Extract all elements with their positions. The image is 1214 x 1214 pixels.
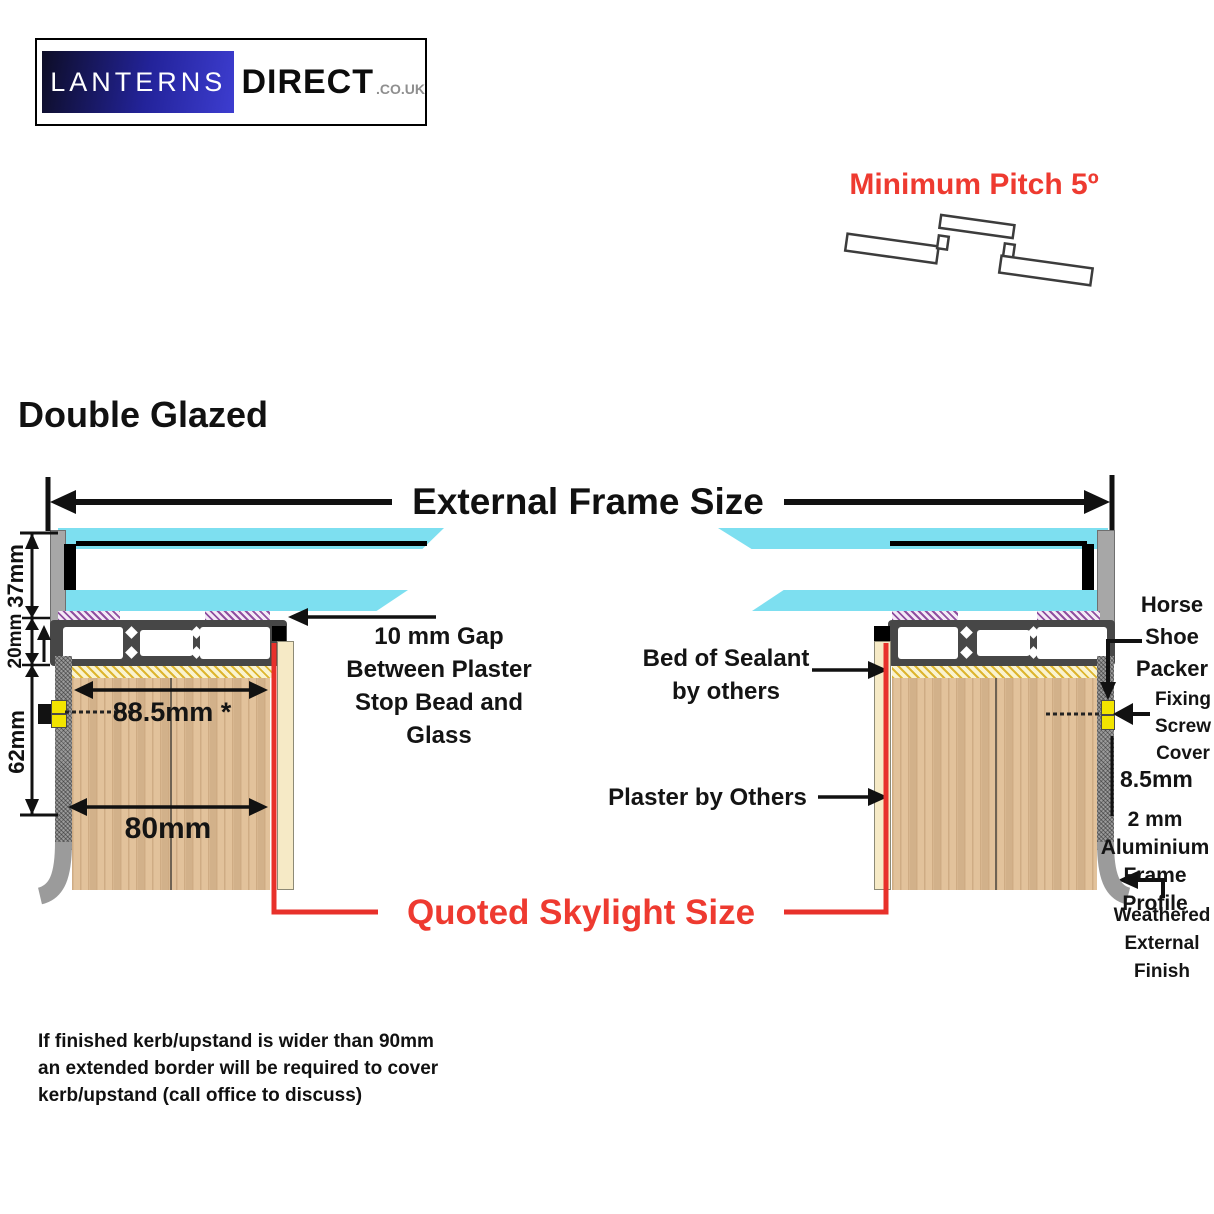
gap-note-line: Stop Bead and [343,686,535,719]
skylight-spec-sheet: LANTERNS DIRECT .CO.UK Minimum Pitch 5º … [0,0,1214,1214]
footer-note-line: If finished kerb/upstand is wider than 9… [38,1028,458,1055]
minimum-pitch-label: Minimum Pitch 5º [832,168,1116,202]
footer-note-line: an extended border will be required to c… [38,1055,458,1082]
sealant-note-line: Bed of Sealant [630,642,822,675]
fixing-screw-note: Fixing Screw Cover [1152,686,1214,767]
weathered-note: Weathered External Finish [1108,902,1214,986]
horse-shoe-note-line: Shoe [1128,621,1214,653]
weathered-note-line: Weathered [1108,902,1214,930]
fixing-screw-note-line: Fixing [1152,686,1214,713]
sealant-bed-right [892,664,1097,678]
quoted-skylight-size-label: Quoted Skylight Size [380,893,782,933]
plaster-stop-bead-left [272,626,286,641]
gap-note-line: Glass [343,719,535,752]
dim-cover: 8.5mm [1120,766,1210,793]
glass-pane-bottom-right [752,590,1108,611]
dim-inner-width: 80mm [68,812,268,846]
external-frame-size-label: External Frame Size [392,481,784,523]
weathered-note-line: External [1108,930,1214,958]
alu-profile-note-line: 2 mm [1094,806,1214,834]
brand-logo: LANTERNS DIRECT .CO.UK [35,38,427,126]
fixing-screw-note-line: Cover [1152,740,1214,767]
gap-note-line: 10 mm Gap [343,620,535,653]
plaster-board-right [874,641,891,890]
horse-shoe-note-line: Horse [1128,589,1214,621]
horse-shoe-packer-right-bottom [1101,715,1115,730]
horse-shoe-note: Horse Shoe Packer [1128,589,1214,685]
sealant-note-line: by others [630,675,822,708]
sealant-bed-left [64,664,272,678]
gap-note: 10 mm Gap Between Plaster Stop Bead and … [343,620,535,752]
aluminium-profile-right [888,620,1115,666]
minimum-pitch-icon [838,210,1098,310]
footer-note-line: kerb/upstand (call office to discuss) [38,1082,458,1109]
weathered-note-line: Finish [1108,958,1214,986]
fixing-screw-arrow [1113,703,1150,725]
glazing-spacer-line-right [890,541,1087,546]
horse-shoe-packer-left-bottom [51,714,67,728]
glazing-spacer-bar-right [1082,544,1094,590]
fixing-screw-note-line: Screw [1152,713,1214,740]
dim-profile-20mm: 20mm [5,601,27,681]
section-title: Double Glazed [18,394,268,436]
plaster-note: Plaster by Others [600,784,815,812]
fixing-screw-head-left [38,704,51,724]
alu-profile-note-line: Aluminium [1094,834,1214,862]
dim-upstand-62mm: 62mm [4,702,30,782]
plaster-board-left [277,641,294,890]
kerb-upstand-right [892,678,1097,890]
sealant-note: Bed of Sealant by others [630,642,822,708]
horse-shoe-packer-left-top [51,700,67,714]
horse-shoe-packer-right-top [1101,700,1115,715]
brand-logo-tld: .CO.UK [376,81,425,97]
brand-logo-secondary: DIRECT [241,63,374,102]
horse-shoe-note-line: Packer [1128,653,1214,685]
gap-note-line: Between Plaster [343,653,535,686]
dim-upstand-width: 88.5mm * [72,697,272,728]
aluminium-profile-left [50,620,287,666]
brand-logo-primary: LANTERNS [42,51,234,113]
glazing-spacer-bar-left [64,544,76,590]
plaster-stop-bead-right [874,626,890,641]
glazing-spacer-line-left [76,541,427,546]
footer-note: If finished kerb/upstand is wider than 9… [38,1028,458,1109]
glass-pane-bottom-left [58,590,408,611]
